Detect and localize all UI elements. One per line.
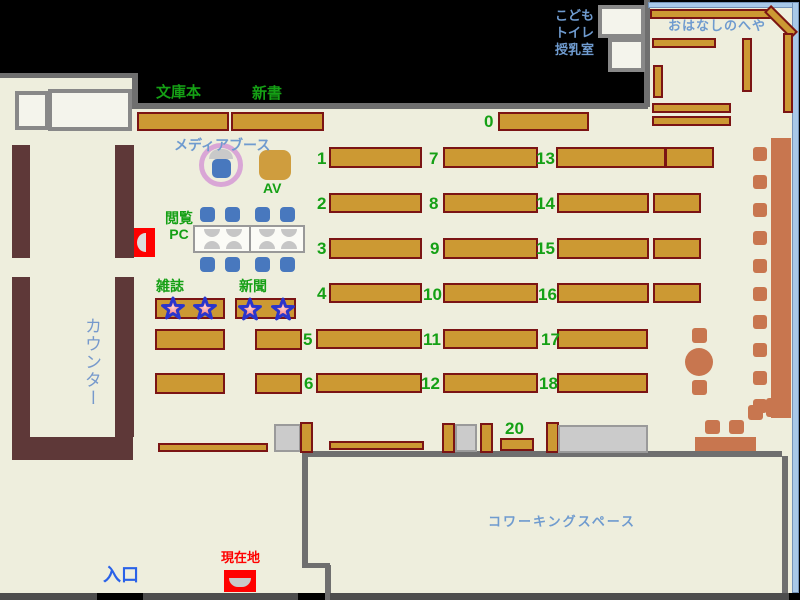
shelf-14a [557, 193, 649, 213]
shelf-bunko [137, 112, 229, 131]
pc-chair [280, 257, 295, 272]
shelf-num-13: 13 [536, 149, 555, 168]
label-av: AV [263, 180, 281, 196]
chair [753, 203, 767, 217]
story-shelf-v3 [783, 33, 793, 113]
media-booth-chair [212, 159, 231, 178]
shelf-9 [443, 238, 538, 259]
star-icon [159, 295, 187, 323]
shelf-20 [500, 438, 534, 451]
round-table [685, 348, 713, 376]
shelf-13a [556, 147, 666, 168]
shelf-low-v1 [300, 422, 313, 453]
wall-coworking-top [302, 451, 782, 457]
wall-bottom-2 [143, 593, 298, 600]
current-location-marker [224, 570, 256, 592]
shelf-num-15: 15 [536, 239, 555, 258]
shelf-14b [653, 193, 701, 213]
chair [766, 398, 785, 417]
toilet-room [598, 5, 645, 38]
shelf-16a [557, 283, 649, 303]
shelf-4 [329, 283, 422, 303]
shelf-num-18: 18 [539, 374, 558, 393]
shelf-13b [665, 147, 714, 168]
shelf-17 [557, 329, 648, 349]
wall-coworking-right [782, 456, 788, 595]
label-shinsho: 新書 [252, 86, 282, 102]
chair [753, 315, 767, 329]
shelf-low-long-2 [329, 441, 424, 450]
label-media-booth: メディアブース [174, 137, 270, 154]
backroom-box-small [15, 91, 49, 130]
label-entrance: 入口 [103, 567, 139, 584]
label-newspapers: 新聞 [239, 278, 267, 294]
shelf-15b [653, 238, 701, 259]
shelf-0 [498, 112, 589, 131]
label-nursing: 授乳室 [555, 42, 594, 57]
shelf-num-0: 0 [484, 112, 493, 131]
story-shelf-v1 [653, 65, 663, 98]
shelf-3 [329, 238, 422, 259]
shelf-num-20: 20 [505, 419, 524, 438]
label-coworking: コワーキングスペース [488, 513, 636, 530]
story-shelf-v2 [742, 38, 752, 92]
story-shelf-3 [652, 103, 731, 113]
backroom-box-large [48, 89, 132, 131]
shelf-12 [443, 373, 538, 393]
label-pc: 閲覧 PC [163, 210, 195, 242]
label-toilet: トイレ [555, 25, 594, 40]
shelf-shinsho [231, 112, 324, 131]
pc-chair [200, 257, 215, 272]
shelf-15a [557, 238, 649, 259]
story-room-border-top [648, 2, 799, 8]
chair [753, 343, 767, 357]
label-pc-line2: PC [169, 226, 188, 242]
shelf-low-long-1 [158, 443, 268, 452]
shelf-num-11: 11 [423, 330, 441, 349]
shelf-row5-left [155, 329, 225, 350]
pc-seat-icon [259, 241, 275, 249]
story-shelf-2 [652, 38, 716, 48]
shelf-10 [443, 283, 538, 303]
chair [753, 231, 767, 245]
label-story-room: おはなしのへや [668, 17, 766, 34]
chair [753, 147, 767, 161]
star-icon [269, 296, 297, 324]
wall-bottom-1 [0, 593, 97, 600]
chair [753, 371, 767, 385]
return-gate-marker [134, 228, 155, 257]
chair [729, 420, 744, 434]
shelf-num-7: 7 [429, 149, 438, 168]
shelf-6 [316, 373, 422, 393]
pc-chair [200, 207, 215, 222]
chair [753, 287, 767, 301]
study-desk-right [771, 138, 791, 418]
counter-right-upper [115, 145, 134, 258]
chair [692, 380, 707, 395]
pc-chair [280, 207, 295, 222]
pc-chair [225, 257, 240, 272]
shelf-low-v2 [442, 423, 455, 453]
shelf-low-v3 [480, 423, 493, 453]
chair [705, 420, 720, 434]
gate-crescent-icon [137, 233, 146, 252]
counter-left-upper [12, 145, 30, 258]
pc-chair [255, 207, 270, 222]
shelf-1 [329, 147, 422, 168]
wall-top-main [132, 103, 648, 109]
av-station [259, 150, 291, 180]
shelf-num-8: 8 [429, 194, 438, 213]
pc-seat-icon [281, 229, 297, 237]
label-magazines: 雑誌 [156, 278, 184, 294]
shelf-row6-mid [255, 373, 302, 394]
label-pc-line1: 閲覧 [165, 210, 193, 226]
label-bunko: 文庫本 [156, 85, 201, 101]
counter-bottom [12, 437, 133, 460]
copier-box-1 [274, 424, 301, 452]
copier-box-3 [558, 425, 648, 453]
chair [753, 175, 767, 189]
wall-bottom-3 [330, 593, 789, 600]
location-bowl-icon [229, 578, 251, 587]
pc-seat-icon [226, 229, 242, 237]
counter-right-lower [115, 277, 134, 437]
shelf-5 [316, 329, 422, 349]
story-shelf-4 [652, 116, 731, 126]
bench [695, 437, 756, 451]
shelf-num-4: 4 [317, 284, 326, 303]
library-floor-map: 文庫本 新書 メディアブース AV 閲覧 PC 雑誌 新聞 カウンター こども … [0, 0, 800, 600]
label-kids-toilet-nursing: こども トイレ 授乳室 [546, 7, 594, 58]
shelf-num-12: 12 [421, 374, 440, 393]
star-icon [236, 296, 264, 324]
shelf-18 [557, 373, 648, 393]
shelf-11 [443, 329, 538, 349]
shelf-num-14: 14 [536, 194, 555, 213]
shelf-8 [443, 193, 538, 213]
star-icon [191, 295, 219, 323]
shelf-row5-mid [255, 329, 302, 350]
label-counter: カウンター [83, 317, 100, 407]
chair [748, 405, 763, 420]
copier-box-2 [455, 424, 477, 452]
pc-seat-icon [204, 241, 220, 249]
shelf-num-6: 6 [304, 374, 313, 393]
shelf-num-2: 2 [317, 194, 326, 213]
pc-seat-icon [226, 241, 242, 249]
shelf-num-1: 1 [317, 149, 326, 168]
pc-chair [255, 257, 270, 272]
chair [692, 328, 707, 343]
shelf-num-5: 5 [303, 330, 312, 349]
shelf-2 [329, 193, 422, 213]
pc-seat-icon [204, 229, 220, 237]
counter-left-lower [12, 277, 30, 460]
shelf-num-10: 10 [423, 285, 442, 304]
wall-coworking-left [302, 452, 308, 565]
label-kids: こども [555, 8, 594, 23]
pc-chair [225, 207, 240, 222]
shelf-num-17: 17 [541, 330, 560, 349]
pc-seat-icon [281, 241, 297, 249]
nursing-room [608, 38, 645, 72]
shelf-num-16: 16 [538, 285, 557, 304]
wall-top-left [0, 73, 137, 78]
pc-seat-icon [259, 229, 275, 237]
story-room-border-right [792, 2, 799, 593]
pc-table [193, 225, 305, 253]
shelf-num-9: 9 [430, 239, 439, 258]
shelf-7 [443, 147, 538, 168]
chair [753, 259, 767, 273]
label-current-location: 現在地 [221, 549, 260, 566]
pc-table-divider [249, 227, 251, 251]
shelf-row6-left [155, 373, 225, 394]
shelf-16b [653, 283, 701, 303]
shelf-num-3: 3 [317, 239, 326, 258]
